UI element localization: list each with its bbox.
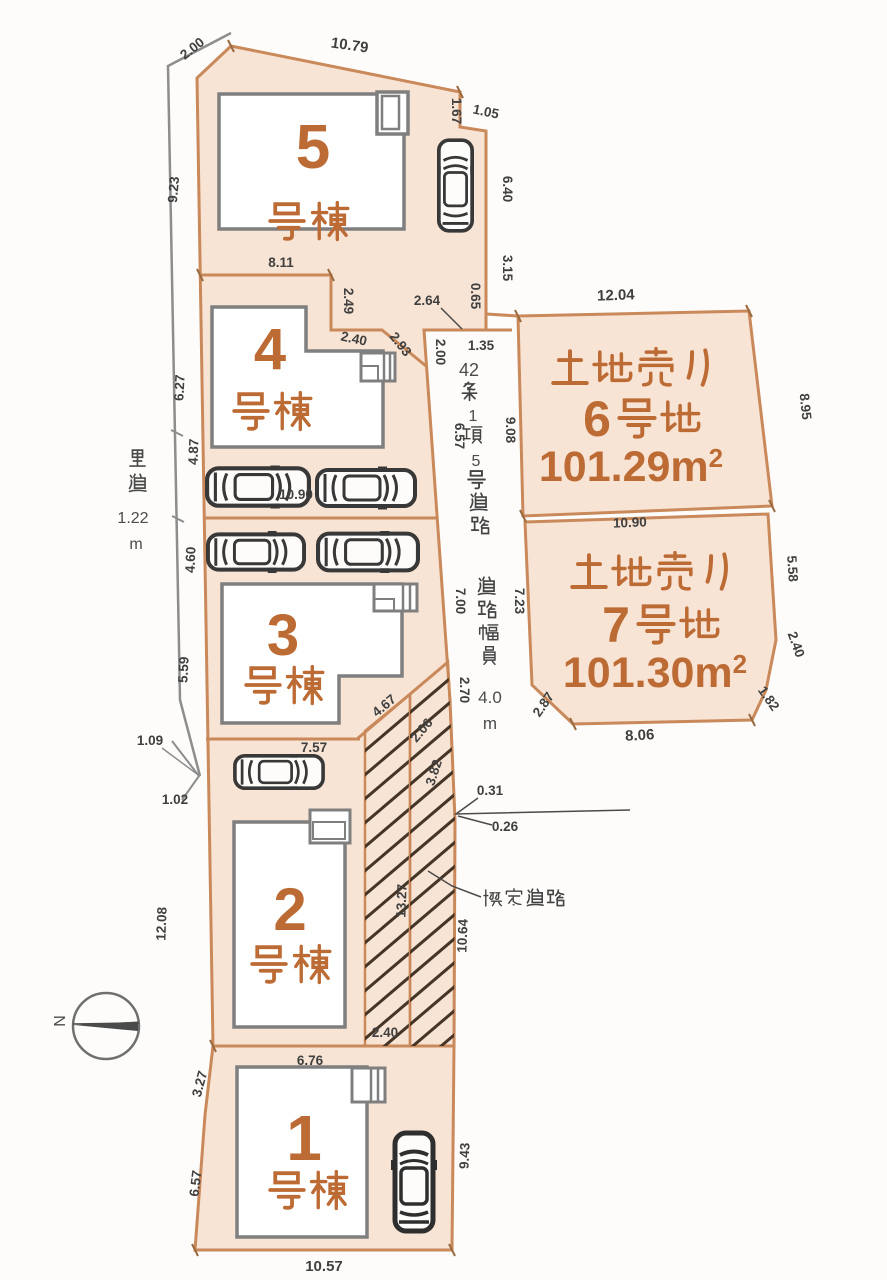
svg-text:1.09: 1.09 bbox=[137, 733, 163, 748]
svg-text:1.67: 1.67 bbox=[449, 98, 464, 124]
svg-text:4.60: 4.60 bbox=[183, 546, 199, 573]
svg-text:8.11: 8.11 bbox=[268, 255, 294, 270]
svg-text:9.08: 9.08 bbox=[503, 417, 518, 444]
svg-text:4.87: 4.87 bbox=[186, 438, 202, 465]
svg-text:0.31: 0.31 bbox=[477, 783, 504, 798]
svg-text:2.40: 2.40 bbox=[372, 1025, 398, 1040]
svg-text:12.08: 12.08 bbox=[153, 906, 169, 941]
svg-text:1.22: 1.22 bbox=[117, 510, 148, 527]
svg-text:7.57: 7.57 bbox=[301, 740, 327, 755]
svg-text:12.04: 12.04 bbox=[597, 286, 636, 304]
svg-text:0.65: 0.65 bbox=[468, 283, 483, 310]
svg-text:1: 1 bbox=[469, 408, 478, 425]
svg-text:5.59: 5.59 bbox=[175, 656, 191, 683]
svg-text:8.06: 8.06 bbox=[625, 726, 655, 745]
svg-text:1: 1 bbox=[286, 1102, 322, 1174]
svg-text:10.90: 10.90 bbox=[613, 514, 647, 530]
svg-text:6.57: 6.57 bbox=[186, 1169, 204, 1197]
svg-text:6: 6 bbox=[583, 391, 611, 447]
svg-text:6.76: 6.76 bbox=[297, 1053, 324, 1068]
svg-text:2.64: 2.64 bbox=[414, 293, 441, 308]
svg-text:13.27: 13.27 bbox=[393, 884, 409, 918]
svg-text:2.49: 2.49 bbox=[341, 288, 356, 314]
svg-text:5.58: 5.58 bbox=[784, 555, 801, 583]
svg-text:1.02: 1.02 bbox=[162, 792, 188, 807]
svg-text:6.57: 6.57 bbox=[452, 423, 467, 449]
svg-text:101.30m2: 101.30m2 bbox=[563, 649, 747, 697]
svg-text:2.70: 2.70 bbox=[457, 677, 472, 703]
svg-text:9.23: 9.23 bbox=[165, 175, 182, 203]
svg-text:4: 4 bbox=[254, 317, 286, 382]
svg-text:10.64: 10.64 bbox=[454, 918, 470, 953]
svg-text:m: m bbox=[129, 536, 142, 553]
svg-text:2.00: 2.00 bbox=[433, 339, 448, 365]
svg-text:N: N bbox=[52, 1015, 69, 1027]
svg-text:10.57: 10.57 bbox=[305, 1258, 343, 1275]
svg-text:1.35: 1.35 bbox=[468, 338, 495, 353]
svg-text:3: 3 bbox=[267, 603, 299, 668]
svg-text:6.27: 6.27 bbox=[171, 374, 187, 401]
svg-text:7.23: 7.23 bbox=[512, 588, 527, 615]
svg-text:101.29m2: 101.29m2 bbox=[539, 443, 723, 491]
svg-text:5: 5 bbox=[472, 453, 481, 470]
svg-text:m: m bbox=[483, 714, 497, 733]
svg-text:7.00: 7.00 bbox=[453, 588, 468, 614]
svg-text:0.26: 0.26 bbox=[492, 819, 519, 834]
svg-text:10.90: 10.90 bbox=[279, 487, 313, 502]
svg-text:6.40: 6.40 bbox=[500, 176, 515, 202]
svg-text:9.43: 9.43 bbox=[457, 1142, 473, 1169]
svg-text:3.15: 3.15 bbox=[500, 255, 515, 282]
svg-text:5: 5 bbox=[296, 113, 330, 182]
svg-text:4.0: 4.0 bbox=[478, 688, 502, 707]
svg-text:2: 2 bbox=[273, 876, 306, 943]
svg-text:8.95: 8.95 bbox=[797, 393, 815, 421]
svg-text:7: 7 bbox=[602, 597, 630, 653]
svg-text:42: 42 bbox=[459, 360, 479, 380]
